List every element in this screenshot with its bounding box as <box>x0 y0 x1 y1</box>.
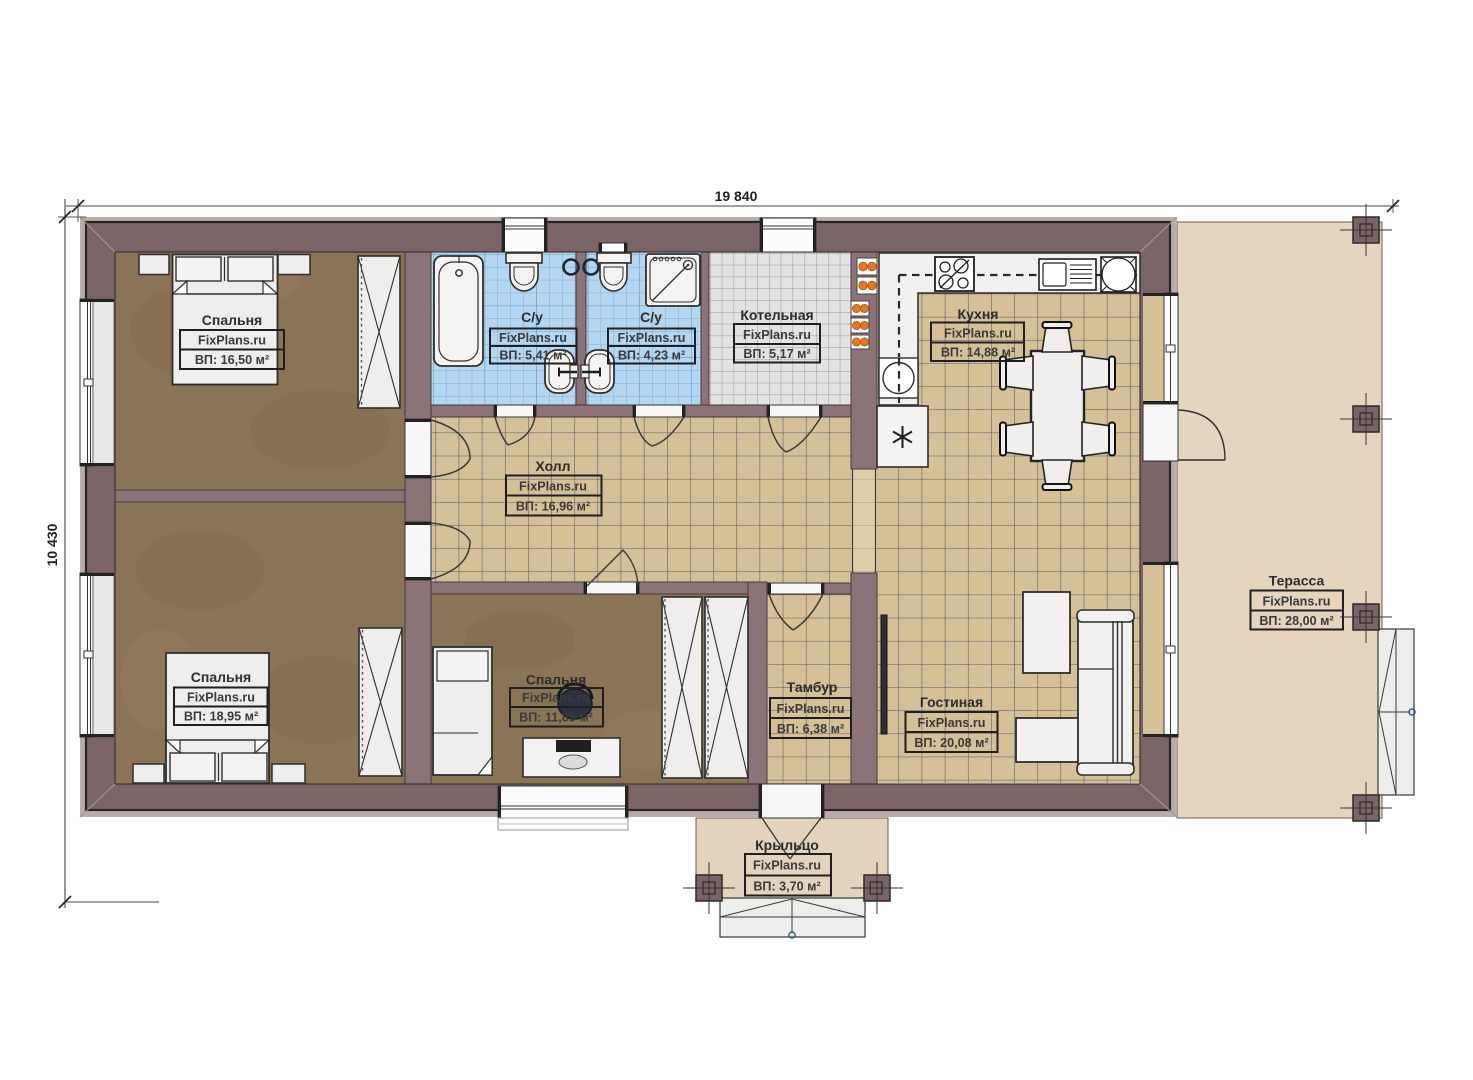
svg-text:ВП: 6,38 м²: ВП: 6,38 м² <box>777 722 844 736</box>
svg-text:FixPlans.ru: FixPlans.ru <box>519 480 587 494</box>
svg-text:Тамбур: Тамбур <box>787 679 838 695</box>
svg-text:FixPlans.ru: FixPlans.ru <box>753 859 821 873</box>
svg-text:FixPlans.ru: FixPlans.ru <box>522 691 590 705</box>
svg-text:ВП: 28,00 м²: ВП: 28,00 м² <box>1259 614 1333 628</box>
svg-text:Крыльцо: Крыльцо <box>755 837 819 853</box>
svg-text:С/у: С/у <box>640 309 662 325</box>
svg-text:FixPlans.ru: FixPlans.ru <box>187 691 255 705</box>
svg-text:Холл: Холл <box>535 458 570 474</box>
svg-text:ВП: 5,41 м²: ВП: 5,41 м² <box>499 349 566 363</box>
svg-text:Спальня: Спальня <box>526 672 586 688</box>
svg-text:ВП: 20,08 м²: ВП: 20,08 м² <box>914 736 988 750</box>
svg-text:ВП: 4,23 м²: ВП: 4,23 м² <box>618 349 685 363</box>
svg-text:Гостиная: Гостиная <box>920 694 983 710</box>
svg-text:FixPlans.ru: FixPlans.ru <box>618 331 686 345</box>
svg-text:FixPlans.ru: FixPlans.ru <box>1263 595 1331 609</box>
svg-text:FixPlans.ru: FixPlans.ru <box>743 328 811 342</box>
svg-text:ВП: 11,89 м²: ВП: 11,89 м² <box>519 711 593 725</box>
svg-text:Терасса: Терасса <box>1269 573 1325 589</box>
svg-text:FixPlans.ru: FixPlans.ru <box>918 716 986 730</box>
svg-text:С/у: С/у <box>521 309 543 325</box>
svg-text:FixPlans.ru: FixPlans.ru <box>777 702 845 716</box>
svg-text:Спальня: Спальня <box>191 669 251 685</box>
svg-text:ВП: 16,96 м²: ВП: 16,96 м² <box>516 500 590 514</box>
svg-text:FixPlans.ru: FixPlans.ru <box>499 331 567 345</box>
svg-text:ВП: 3,70 м²: ВП: 3,70 м² <box>753 880 820 894</box>
svg-text:ВП: 16,50 м²: ВП: 16,50 м² <box>195 353 269 367</box>
svg-text:10 430: 10 430 <box>44 523 60 566</box>
svg-text:ВП: 5,17 м²: ВП: 5,17 м² <box>743 347 810 361</box>
svg-text:19 840: 19 840 <box>715 188 758 204</box>
svg-text:FixPlans.ru: FixPlans.ru <box>944 327 1012 341</box>
svg-text:ВП: 14,88 м²: ВП: 14,88 м² <box>941 346 1015 360</box>
svg-text:Кухня: Кухня <box>958 306 999 322</box>
svg-text:Котельная: Котельная <box>740 307 813 323</box>
svg-text:Спальня: Спальня <box>202 312 262 328</box>
svg-text:ВП: 18,95 м²: ВП: 18,95 м² <box>184 710 258 724</box>
svg-text:FixPlans.ru: FixPlans.ru <box>198 334 266 348</box>
